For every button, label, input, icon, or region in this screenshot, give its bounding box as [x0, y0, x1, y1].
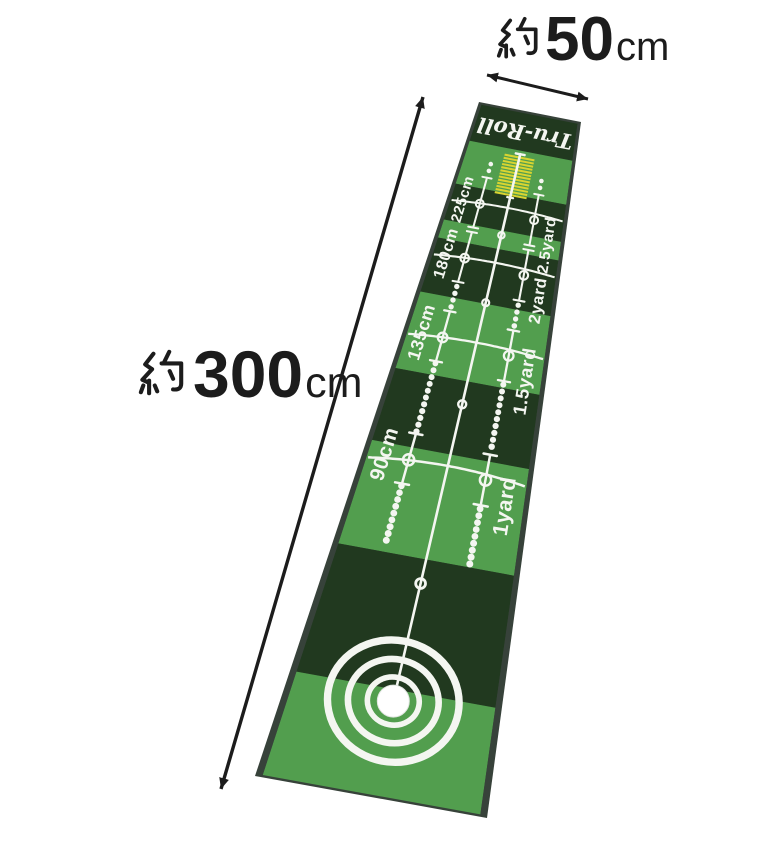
approx-kanji-length: [141, 352, 181, 393]
product-image: 225cm2.5yard180cm2yard135cm1.5yard90cm1y…: [0, 0, 780, 850]
golf-ball: [377, 685, 409, 717]
width-dimension: 50cm: [487, 5, 669, 99]
length-dimension-label: 300cm: [193, 337, 362, 411]
putting-mat-dimension-diagram: 225cm2.5yard180cm2yard135cm1.5yard90cm1y…: [0, 0, 780, 850]
width-arrow: [487, 75, 588, 99]
putting-mat: 225cm2.5yard180cm2yard135cm1.5yard90cm1y…: [255, 102, 581, 818]
width-dimension-label: 50cm: [545, 5, 669, 74]
approx-kanji-width: [499, 19, 536, 57]
